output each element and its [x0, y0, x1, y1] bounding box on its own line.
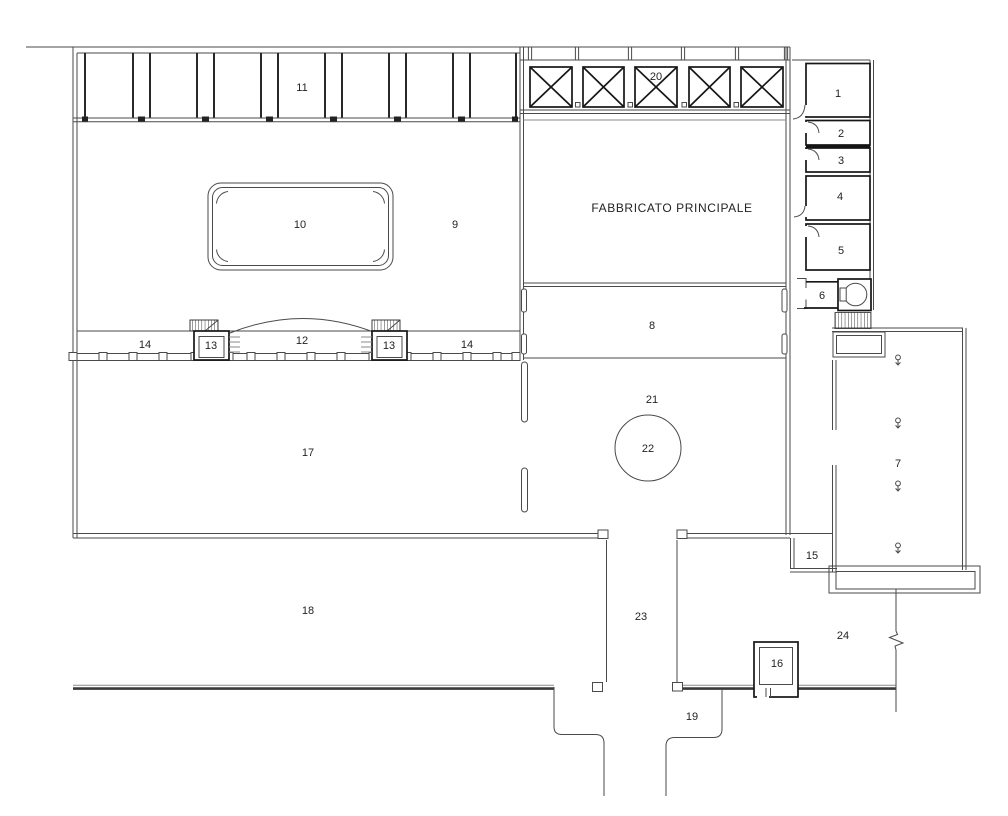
plant-symbol	[896, 418, 901, 428]
room-label-13a: 13	[205, 340, 217, 352]
room-label-3: 3	[838, 155, 844, 167]
driveway-19: 19	[554, 687, 722, 796]
floor-plan-canvas: 11 20 FABBRI	[0, 0, 1008, 816]
room-label-23: 23	[635, 611, 647, 623]
room-label-17: 17	[302, 447, 314, 459]
room-label-6: 6	[819, 290, 825, 302]
room-label-2: 2	[838, 128, 844, 140]
corridor-23: 23	[593, 530, 688, 692]
room-label-15: 15	[806, 550, 818, 562]
room-label-24: 24	[837, 630, 849, 642]
pool-10: 10	[208, 183, 393, 270]
right-wing: 1 2 3 4 5	[792, 60, 874, 310]
room-label-22: 22	[642, 443, 654, 455]
plant-symbol	[896, 481, 901, 491]
room-8: 8	[522, 283, 788, 358]
plant-symbol	[896, 543, 901, 553]
area-24: 24	[837, 630, 849, 642]
room-label-19: 19	[686, 711, 698, 723]
area-7: 7	[829, 328, 980, 712]
stairs-left-13	[190, 320, 218, 331]
main-building-label: FABBRICATO PRINCIPALE	[591, 201, 752, 215]
door-arc	[793, 105, 805, 119]
cistern	[840, 288, 846, 301]
courtyard-9: 9	[452, 219, 458, 231]
door-arc	[794, 206, 805, 217]
room-label-18: 18	[302, 605, 314, 617]
room-label-14b: 14	[461, 339, 473, 351]
floor-plan-svg: 11 20 FABBRI	[0, 0, 1008, 816]
room-label-7: 7	[895, 458, 901, 470]
room-label-20: 20	[650, 71, 662, 83]
main-building: FABBRICATO PRINCIPALE	[524, 120, 787, 215]
stairs-hatch	[835, 313, 871, 329]
area-21: 21 22	[615, 394, 681, 481]
bottom-wall-right	[686, 534, 832, 539]
room-label-11: 11	[296, 82, 307, 94]
room-label-16: 16	[771, 658, 783, 670]
loggia-band: 14 13 12 13 14	[69, 319, 520, 361]
break-line	[890, 589, 904, 712]
room-label-9: 9	[452, 219, 458, 231]
room-label-1: 1	[835, 88, 841, 100]
area-18: 18	[302, 605, 314, 617]
room-label-13b: 13	[383, 340, 395, 352]
main-left-wall	[520, 47, 524, 360]
room-15: 15	[790, 538, 837, 572]
hall-17: 17	[73, 362, 599, 538]
room-label-10: 10	[294, 219, 306, 231]
plant-symbol	[896, 355, 901, 365]
colonnade-11: 11	[73, 53, 520, 122]
room-16: 16	[754, 642, 798, 699]
room-label-14a: 14	[139, 339, 151, 351]
room-6-block: 6	[797, 279, 871, 329]
room-label-21: 21	[646, 394, 658, 406]
stairs-right-13	[372, 320, 400, 331]
room-label-5: 5	[838, 245, 844, 257]
room-label-4: 4	[837, 191, 843, 203]
room-label-8: 8	[649, 320, 655, 332]
truss-strip-20: 20	[520, 47, 790, 114]
room-label-12: 12	[296, 335, 308, 347]
